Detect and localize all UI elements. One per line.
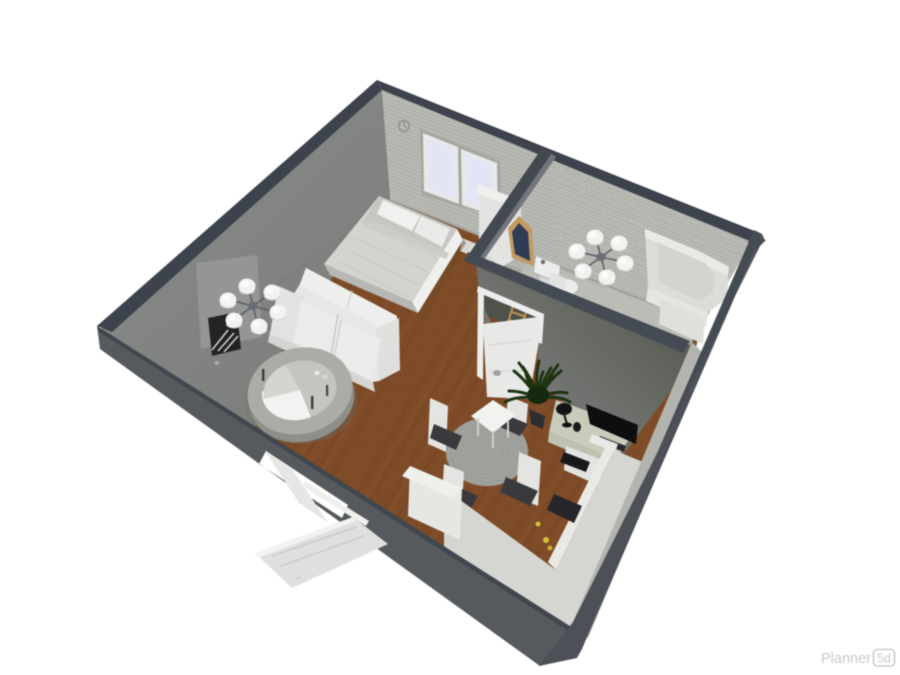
svg-text:5d: 5d <box>877 652 891 666</box>
svg-text:Planner: Planner <box>821 651 871 667</box>
